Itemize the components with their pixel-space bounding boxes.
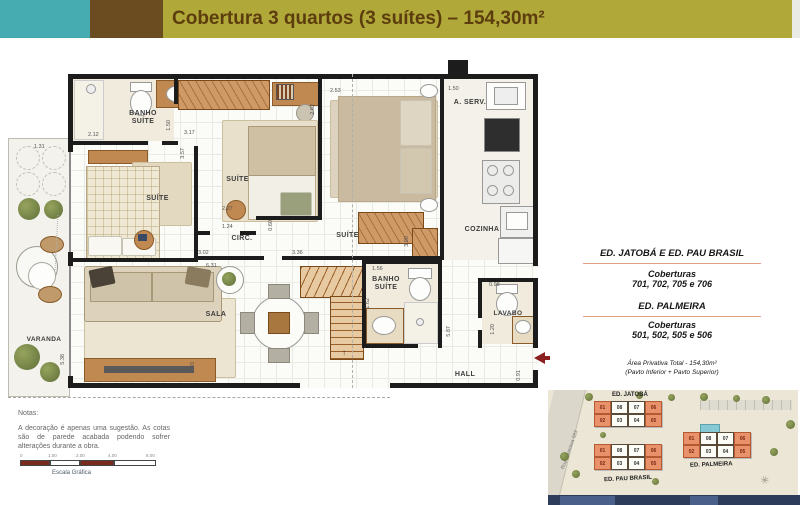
wall-segment	[194, 231, 210, 235]
stairs-winder	[300, 266, 364, 298]
wall-segment	[194, 256, 264, 260]
site-plan: Rua Ituverava 583 ED. JATOBÁ 01 08 07 06…	[548, 390, 798, 496]
unit-cell: 02	[594, 457, 611, 470]
stairs-flight	[330, 296, 364, 360]
varanda-chair-outline	[42, 172, 66, 196]
dining-chair	[268, 284, 290, 299]
unit-cell: 05	[734, 445, 751, 458]
info-heading-jatoba-paubrasil: ED. JATOBÁ E ED. PAU BRASIL	[583, 248, 761, 264]
room-label-banho-suite-1: BANHO SUÍTE	[120, 110, 166, 126]
unit-cell: 01	[594, 401, 611, 414]
dimension-label: 1.31	[34, 144, 45, 150]
unit-cell: 04	[628, 457, 645, 470]
building-label-jatoba: ED. JATOBÁ	[612, 392, 648, 398]
unit-cell: 08	[611, 444, 628, 457]
varanda-chair-outline	[16, 172, 40, 196]
dimension-label: 1.56	[372, 266, 383, 272]
varanda-chair	[40, 236, 64, 253]
wall-segment	[438, 260, 442, 348]
dimension-label: 1.20	[490, 324, 496, 335]
dimension-label: 3.17	[184, 130, 195, 136]
building-jatoba: 01 08 07 06 02 03 04 05	[594, 401, 662, 427]
dimension-label: 3.90	[404, 236, 410, 247]
sink-basin	[515, 320, 531, 334]
scale-tick: 8.00	[146, 453, 155, 458]
parking-stalls	[700, 400, 792, 410]
dimension-label: 2.62	[310, 104, 316, 115]
tree-icon	[668, 394, 675, 401]
room-label-circ: CIRC.	[222, 235, 262, 243]
dimension-label: 3.57	[180, 148, 186, 159]
burner-icon	[503, 165, 514, 176]
books-icon	[276, 84, 294, 100]
window-line	[69, 152, 71, 252]
dimension-label: 2.53	[330, 88, 341, 94]
site-road	[548, 390, 586, 496]
sink-basin	[372, 316, 396, 335]
table-centerpiece	[268, 312, 290, 334]
wall-segment	[318, 74, 322, 220]
scale-tick: 0	[20, 453, 23, 458]
unit-cell: 07	[628, 444, 645, 457]
scale-tick: 4.00	[108, 453, 117, 458]
wall-segment	[362, 260, 442, 264]
info-area-total: Área Privativa Total - 154,30m²	[583, 360, 761, 367]
page-title: Cobertura 3 quartos (3 suítes) – 154,30m…	[172, 0, 545, 38]
wall-segment	[68, 383, 300, 388]
dimension-label: 0.60	[268, 220, 274, 231]
dining-chair	[304, 312, 319, 334]
info-panel: ED. JATOBÁ E ED. PAU BRASIL Coberturas 7…	[583, 246, 761, 381]
dimension-label: 2.93	[190, 362, 196, 373]
room-label-lavabo: LAVABO	[482, 310, 534, 318]
unit-cell: 06	[645, 444, 662, 457]
wall-segment	[478, 278, 534, 282]
dimension-label: 1.62	[365, 298, 371, 309]
tree-icon	[600, 432, 606, 438]
entrance-arrow-icon	[534, 352, 545, 364]
dimension-label: 2.27	[222, 206, 233, 212]
plant-icon	[222, 272, 236, 286]
shower-head-icon	[86, 84, 96, 94]
varanda-chair	[38, 286, 62, 303]
room-label-suite-1: SUÍTE	[135, 195, 180, 203]
burner-icon	[503, 185, 514, 196]
unit-cell: 03	[700, 445, 717, 458]
scale-segment	[80, 460, 114, 466]
info-units-700s: 701, 702, 705 e 706	[583, 279, 761, 289]
unit-cell: 08	[700, 432, 717, 445]
room-label-suite-3: SUÍTE	[325, 232, 370, 240]
entrance-arrow-stem	[545, 356, 550, 360]
unit-cell: 03	[611, 414, 628, 427]
washing-machine-icon	[484, 118, 520, 152]
tree-icon	[560, 452, 569, 461]
unit-cell: 01	[683, 432, 700, 445]
scale-bar: 0 1.00 2.00 4.00 8.00	[20, 460, 156, 466]
info-coberturas-label: Coberturas	[583, 320, 761, 330]
dimension-label: 5.38	[60, 354, 66, 365]
info-units-500s: 501, 502, 505 e 506	[583, 330, 761, 340]
room-label-sala: SALA	[196, 311, 236, 319]
tree-icon	[786, 420, 795, 429]
tree-icon	[733, 395, 740, 402]
burner-icon	[487, 185, 498, 196]
unit-cell: 08	[611, 401, 628, 414]
tree-icon	[770, 448, 778, 456]
unit-cell: 05	[645, 457, 662, 470]
dimension-label: 1.50	[166, 120, 172, 131]
wall-segment	[390, 383, 538, 388]
wall-segment	[533, 74, 538, 266]
tree-icon	[700, 393, 708, 401]
north-arrow-icon: ✳	[758, 473, 771, 488]
dining-chair	[240, 312, 255, 334]
header-edge-sliver	[792, 0, 800, 38]
bed-pillow	[280, 192, 312, 216]
room-label-a-serv: A. SERV.	[442, 99, 498, 107]
bed-pillow	[88, 236, 122, 256]
dimension-label: 2.12	[88, 132, 99, 138]
tree-icon	[572, 470, 580, 478]
unit-cell: 04	[628, 414, 645, 427]
shaft-block	[448, 60, 468, 76]
building-label-pau-brasil: ED. PAU BRASIL	[604, 475, 652, 483]
plant-icon	[40, 362, 60, 382]
stairs-up-arrow-icon: ↑	[342, 348, 346, 357]
wall-segment	[162, 141, 178, 145]
scale-tick: 2.00	[76, 453, 85, 458]
dimension-label: 3.36	[292, 250, 303, 256]
info-area-detail: (Pavto Inferior + Pavto Superior)	[583, 369, 761, 376]
info-coberturas-label: Coberturas	[583, 269, 761, 279]
tree-icon	[585, 393, 593, 401]
throw-pillow	[185, 266, 212, 288]
dining-chair	[268, 348, 290, 363]
plant-icon	[14, 344, 40, 370]
projection-line	[8, 397, 390, 398]
wall-segment	[478, 330, 482, 348]
dimension-label: 0.98	[489, 282, 500, 288]
closet	[178, 80, 270, 110]
shower-head-icon	[416, 318, 424, 326]
dimension-label: 1.50	[448, 86, 459, 92]
scale-segment	[20, 460, 50, 466]
building-pau-brasil: 01 08 07 06 02 03 04 05	[594, 444, 662, 470]
scale-segment	[50, 460, 80, 466]
scale-bar-label: Escala Gráfica	[52, 470, 91, 476]
notes-body: A decoração é apenas uma sugestão. As co…	[18, 424, 170, 451]
notes-title: Notas:	[18, 410, 38, 417]
dimension-label: 5.87	[446, 326, 452, 337]
wall-segment	[256, 216, 322, 220]
unit-cell: 02	[683, 445, 700, 458]
unit-cell: 01	[594, 444, 611, 457]
wall-segment	[68, 141, 148, 145]
unit-cell: 06	[645, 401, 662, 414]
unit-cell: 04	[717, 445, 734, 458]
window-line	[69, 266, 71, 376]
burner-icon	[487, 165, 498, 176]
wall-segment	[194, 146, 198, 262]
toilet-icon	[409, 277, 431, 301]
header-teal-block	[0, 0, 90, 38]
tree-icon	[762, 396, 770, 404]
bed-pillow	[400, 148, 432, 194]
plant-icon	[18, 198, 40, 220]
header-brown-block	[90, 0, 163, 38]
scale-tick: 1.00	[48, 453, 57, 458]
room-label-varanda: VARANDA	[18, 336, 70, 344]
dimension-label: 6.31	[206, 263, 217, 269]
fridge-icon	[498, 238, 535, 264]
wall-lamp-icon	[420, 198, 438, 212]
building-label-palmeira: ED. PALMEIRA	[690, 461, 733, 468]
varanda-chair-outline	[42, 146, 66, 170]
tree-icon	[652, 478, 659, 485]
bed-blanket	[248, 126, 316, 176]
dimension-label: 0.91	[516, 370, 522, 381]
wall-segment	[174, 74, 178, 104]
wall-segment	[68, 258, 198, 262]
wall-lamp-icon	[420, 84, 438, 98]
section-line	[352, 74, 353, 388]
laptop-icon	[138, 234, 147, 241]
dimension-label: 1.24	[222, 224, 233, 230]
bed-pillow	[400, 100, 432, 146]
info-heading-palmeira: ED. PALMEIRA	[583, 301, 761, 317]
bottom-band-segment	[560, 496, 615, 505]
unit-cell: 06	[734, 432, 751, 445]
dimension-label: 3.02	[198, 250, 209, 256]
unit-cell: 05	[645, 414, 662, 427]
page: Cobertura 3 quartos (3 suítes) – 154,30m…	[0, 0, 800, 505]
room-label-hall: HALL	[435, 371, 495, 379]
room-label-cozinha: COZINHA	[447, 226, 517, 234]
room-label-suite-2: SUÍTE	[215, 176, 260, 184]
bottom-band-segment	[690, 496, 718, 505]
unit-cell: 03	[611, 457, 628, 470]
unit-cell: 07	[628, 401, 645, 414]
room-label-banho-suite-2: BANHO SUÍTE	[366, 276, 406, 292]
building-palmeira: 01 08 07 06 02 03 04 05	[683, 432, 751, 458]
unit-cell: 02	[594, 414, 611, 427]
tv-icon	[104, 366, 194, 373]
wall-segment	[362, 344, 418, 348]
scale-segment	[114, 460, 156, 466]
unit-cell: 07	[717, 432, 734, 445]
